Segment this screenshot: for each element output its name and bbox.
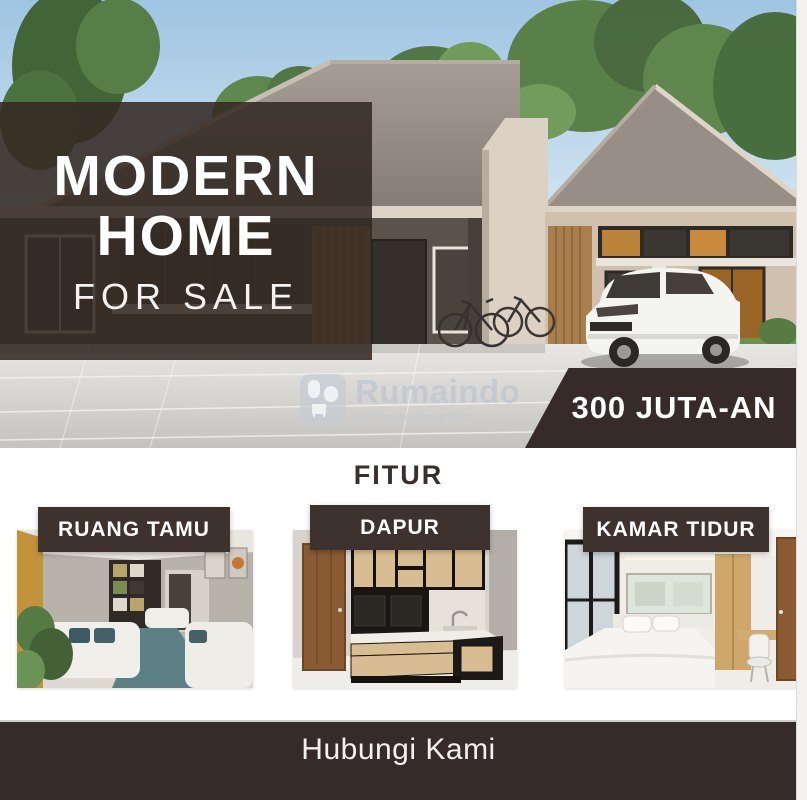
rumaindo-logo-icon bbox=[300, 374, 346, 424]
title-line-2: HOME bbox=[97, 206, 276, 266]
kitchen-photo bbox=[293, 530, 517, 688]
contact-cta-bar[interactable]: Hubungi Kami bbox=[0, 720, 797, 800]
bedroom-label-text: KAMAR TIDUR bbox=[596, 518, 755, 542]
property-flyer: MODERN HOME FOR SALE Rumaindo Cari Prope… bbox=[0, 0, 797, 800]
living-room-label-text: RUANG TAMU bbox=[58, 518, 210, 542]
bedroom-label: KAMAR TIDUR bbox=[583, 507, 769, 552]
right-margin-gutter bbox=[796, 0, 807, 800]
title-overlay: MODERN HOME FOR SALE bbox=[0, 102, 372, 360]
title-line-1: MODERN bbox=[53, 146, 318, 206]
bedroom-photo bbox=[565, 530, 797, 688]
living-room-photo bbox=[17, 530, 253, 688]
hero-subtitle: FOR SALE bbox=[73, 276, 299, 318]
flyer-stage: MODERN HOME FOR SALE Rumaindo Cari Prope… bbox=[0, 0, 807, 800]
rumaindo-watermark: Rumaindo Cari Properti Tanpa Ribet bbox=[300, 374, 520, 424]
kitchen-label: DAPUR bbox=[310, 505, 490, 550]
living-room-label: RUANG TAMU bbox=[38, 507, 230, 552]
watermark-brand: Rumaindo bbox=[355, 375, 520, 408]
features-heading: FITUR bbox=[0, 460, 797, 491]
watermark-tagline: Cari Properti Tanpa Ribet bbox=[355, 413, 520, 423]
price-text: 300 JUTA-AN bbox=[571, 390, 776, 426]
kitchen-label-text: DAPUR bbox=[360, 516, 440, 540]
price-banner: 300 JUTA-AN bbox=[525, 368, 797, 448]
contact-cta-text: Hubungi Kami bbox=[301, 733, 495, 800]
